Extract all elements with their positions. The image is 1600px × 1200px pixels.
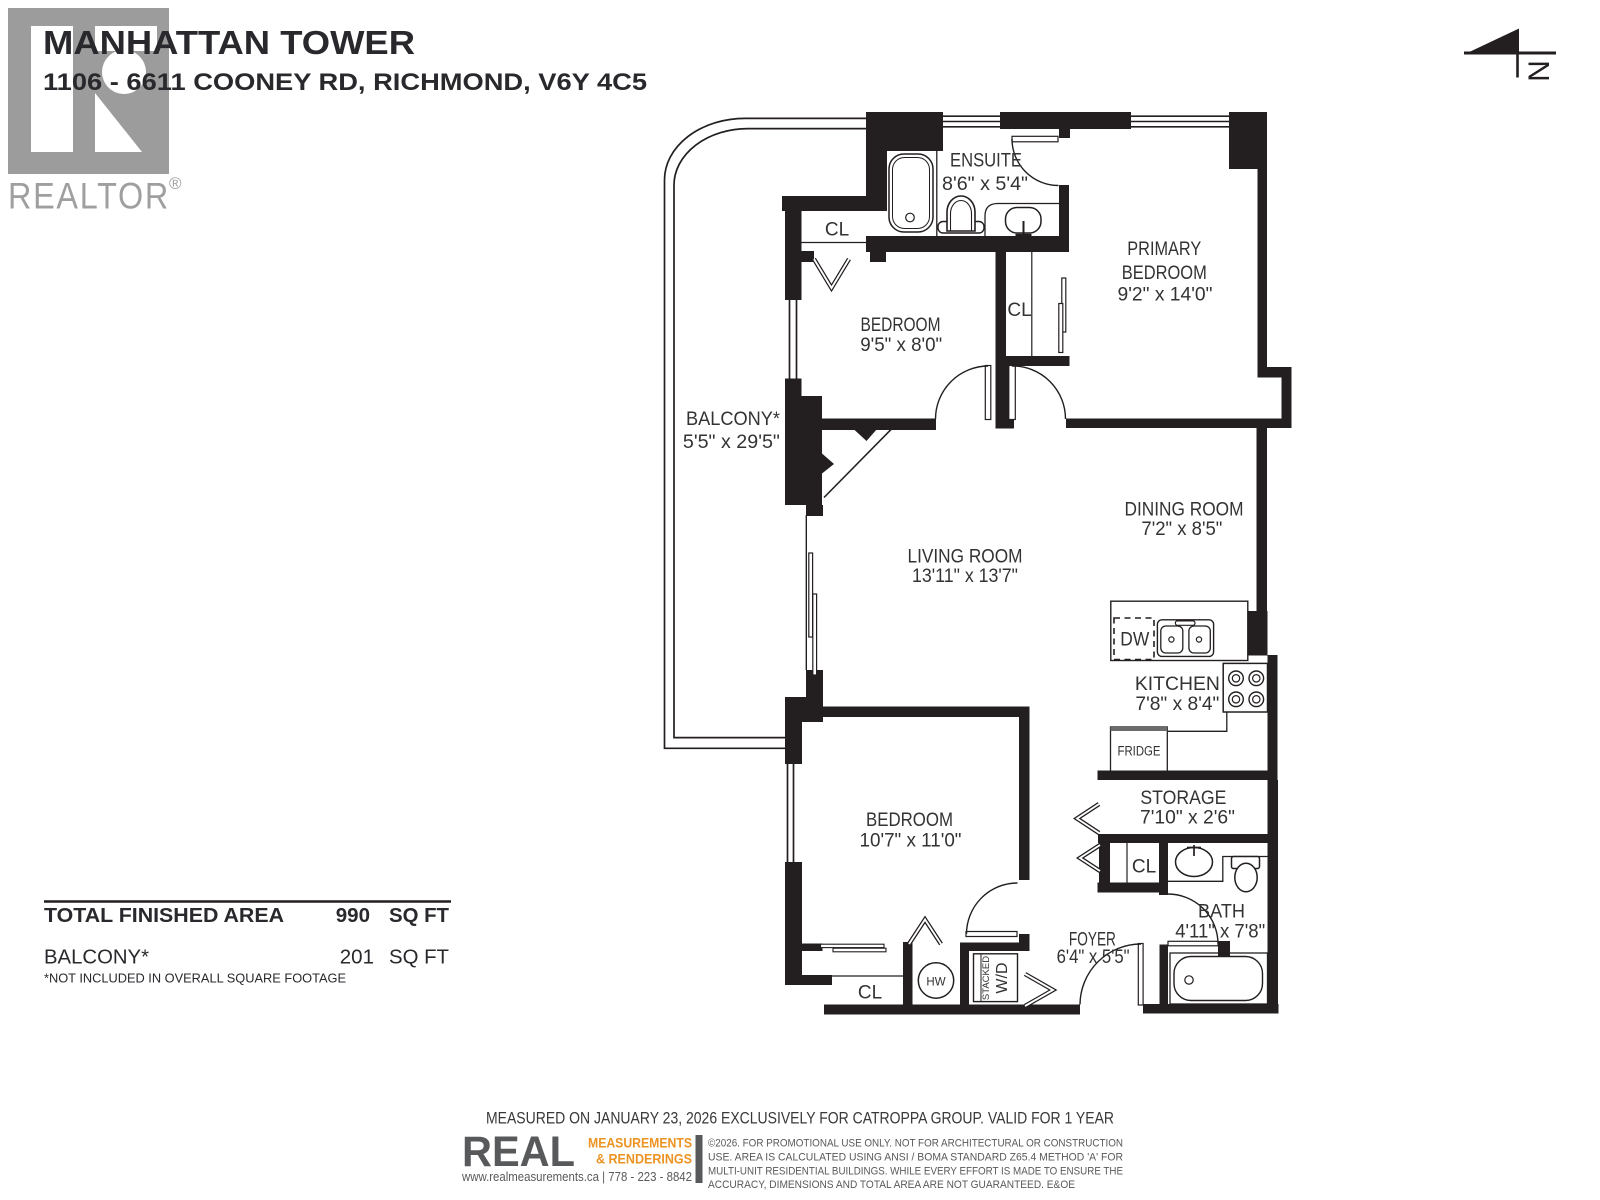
svg-text:ACCURACY, DIMENSIONS AND TOTAL: ACCURACY, DIMENSIONS AND TOTAL AREA ARE … [708, 1179, 1075, 1191]
svg-text:CL: CL [1007, 300, 1031, 321]
svg-text:4'11" x 7'8": 4'11" x 7'8" [1175, 922, 1265, 943]
svg-text:CL: CL [825, 220, 849, 241]
svg-text:1106 - 6611 COONEY RD, RICHMON: 1106 - 6611 COONEY RD, RICHMOND, V6Y 4C5 [43, 69, 647, 96]
svg-text:USE. AREA IS CALCULATED USING: USE. AREA IS CALCULATED USING ANSI / BOM… [708, 1152, 1123, 1164]
svg-text:13'11" x 13'7": 13'11" x 13'7" [912, 566, 1018, 587]
svg-text:DINING ROOM: DINING ROOM [1125, 500, 1244, 521]
svg-text:BEDROOM: BEDROOM [1122, 263, 1207, 284]
svg-text:MEASUREMENTS: MEASUREMENTS [588, 1135, 692, 1151]
svg-text:FRIDGE: FRIDGE [1118, 744, 1161, 759]
svg-text:MANHATTAN TOWER: MANHATTAN TOWER [43, 24, 415, 61]
svg-text:N: N [1522, 60, 1555, 82]
svg-text:©2026. FOR PROMOTIONAL USE ONL: ©2026. FOR PROMOTIONAL USE ONLY. NOT FOR… [708, 1138, 1123, 1150]
svg-text:7'2" x 8'5": 7'2" x 8'5" [1141, 519, 1222, 540]
svg-text:CL: CL [1132, 857, 1156, 878]
svg-text:www.realmeasurements.ca | 778: www.realmeasurements.ca | 778 - 223 - 88… [461, 1170, 692, 1184]
svg-text:STACKED: STACKED [981, 956, 992, 1000]
svg-text:BEDROOM: BEDROOM [861, 315, 941, 336]
svg-text:*NOT INCLUDED IN OVERALL SQUAR: *NOT INCLUDED IN OVERALL SQUARE FOOTAGE [44, 971, 346, 986]
svg-text:BALCONY*: BALCONY* [686, 409, 781, 430]
svg-text:REAL: REAL [462, 1128, 575, 1176]
svg-text:SQ FT: SQ FT [389, 946, 449, 969]
svg-text:REALTOR: REALTOR [8, 175, 170, 217]
svg-text:201: 201 [340, 946, 374, 969]
svg-text:7'10" x 2'6": 7'10" x 2'6" [1140, 808, 1235, 829]
svg-text:9'5" x 8'0": 9'5" x 8'0" [860, 335, 942, 356]
svg-text:TOTAL FINISHED AREA: TOTAL FINISHED AREA [44, 904, 284, 927]
svg-text:8'6" x 5'4": 8'6" x 5'4" [942, 174, 1028, 195]
svg-text:SQ FT: SQ FT [389, 904, 449, 927]
svg-text:ENSUITE: ENSUITE [950, 151, 1022, 172]
svg-text:STORAGE: STORAGE [1140, 788, 1226, 809]
svg-text:KITCHEN: KITCHEN [1135, 674, 1220, 695]
svg-text:9'2" x 14'0": 9'2" x 14'0" [1118, 285, 1213, 306]
svg-text:HW: HW [926, 977, 945, 989]
svg-text:990: 990 [336, 904, 370, 927]
svg-text:5'5" x 29'5": 5'5" x 29'5" [683, 432, 780, 453]
svg-text:W/D: W/D [994, 962, 1011, 993]
svg-text:MEASURED ON JANUARY 23, 2026 E: MEASURED ON JANUARY 23, 2026 EXCLUSIVELY… [486, 1110, 1114, 1128]
svg-text:10'7" x 11'0": 10'7" x 11'0" [860, 831, 962, 852]
svg-text:6'4" x 5'5": 6'4" x 5'5" [1057, 947, 1130, 968]
svg-text:7'8" x 8'4": 7'8" x 8'4" [1135, 694, 1219, 715]
svg-text:CL: CL [858, 983, 882, 1004]
svg-text:DW: DW [1120, 629, 1150, 651]
svg-text:BATH: BATH [1198, 902, 1245, 923]
svg-text:BEDROOM: BEDROOM [866, 810, 953, 831]
svg-text:LIVING ROOM: LIVING ROOM [908, 547, 1023, 568]
svg-text:BALCONY*: BALCONY* [44, 946, 149, 969]
svg-text:®: ® [169, 174, 182, 193]
svg-text:PRIMARY: PRIMARY [1127, 239, 1201, 260]
svg-text:MULTI-UNIT RESIDENTIAL BUILDIN: MULTI-UNIT RESIDENTIAL BUILDINGS. WHILE … [708, 1166, 1123, 1178]
svg-text:& RENDERINGS: & RENDERINGS [596, 1151, 692, 1167]
